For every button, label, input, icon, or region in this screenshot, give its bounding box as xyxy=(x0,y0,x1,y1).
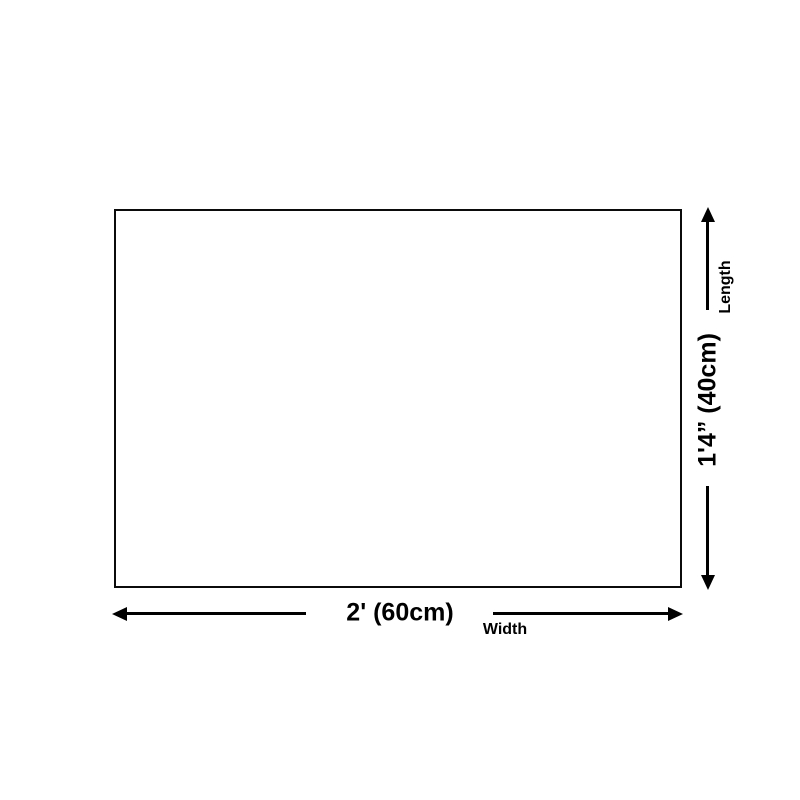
product-rectangle xyxy=(114,209,682,588)
length-caption-label: Length xyxy=(718,260,734,313)
arrow-down-icon xyxy=(701,575,715,590)
arrow-right-icon xyxy=(668,607,683,621)
length-dimension-line-top xyxy=(706,221,709,310)
width-value-label: 2' (60cm) xyxy=(346,601,453,626)
arrow-up-icon xyxy=(701,207,715,222)
width-dimension-line-right xyxy=(493,612,670,615)
width-dimension-line-left xyxy=(125,612,306,615)
length-value-label: 1'4” (40cm) xyxy=(696,333,721,467)
length-dimension-line-bottom xyxy=(706,486,709,577)
width-caption-label: Width xyxy=(483,622,527,638)
dimension-diagram: 2' (60cm) Width Length 1'4” (40cm) xyxy=(0,0,800,800)
